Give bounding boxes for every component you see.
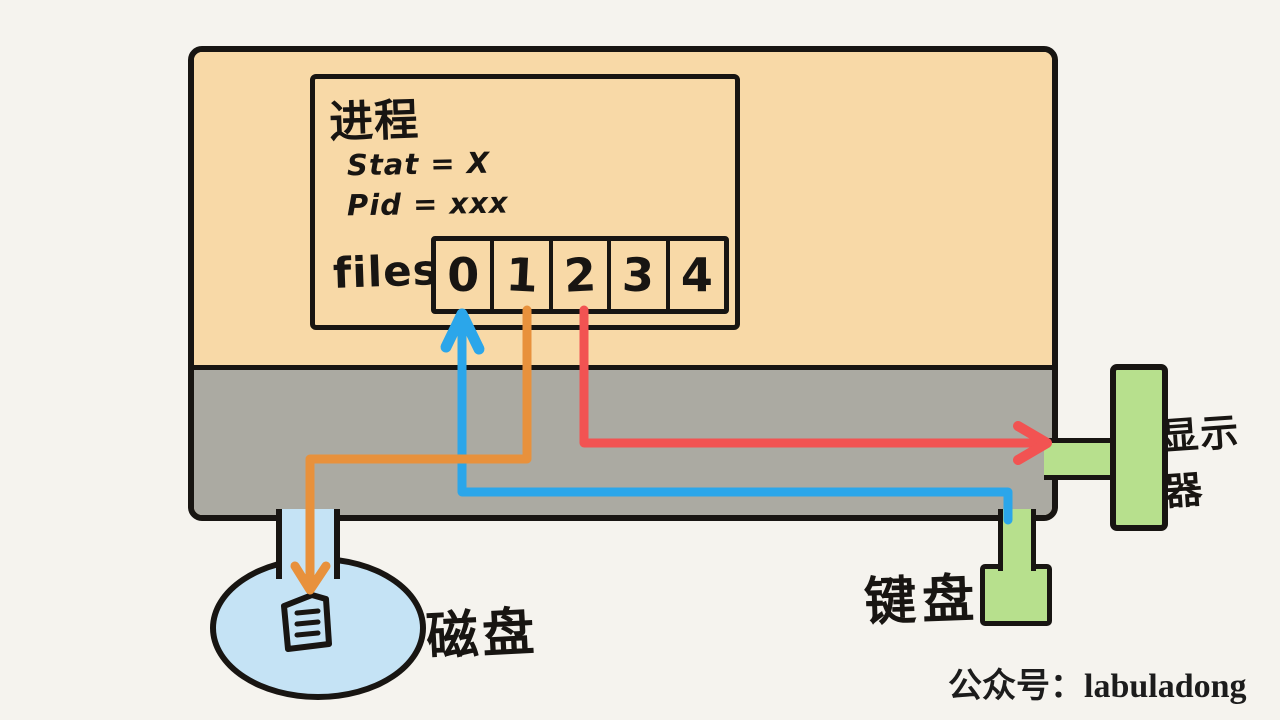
fd-cell-0: 0 bbox=[436, 241, 494, 309]
fd-cell-3: 3 bbox=[611, 241, 669, 309]
display-bar bbox=[1110, 364, 1168, 531]
keyboard-connector bbox=[998, 509, 1036, 571]
kernel-space-region bbox=[194, 370, 1052, 515]
display-connector bbox=[1044, 438, 1116, 480]
process-stat-line: Stat = X bbox=[347, 146, 491, 182]
fd-table: 0 1 2 3 4 bbox=[431, 236, 729, 314]
disk-neck bbox=[276, 509, 340, 579]
keyboard-box bbox=[980, 564, 1052, 626]
file-document-icon bbox=[270, 588, 348, 664]
fd-cell-2: 2 bbox=[553, 241, 611, 309]
files-label: files bbox=[332, 245, 439, 298]
disk-label: 磁盘 bbox=[424, 589, 540, 670]
fd-cell-1: 1 bbox=[494, 241, 552, 309]
display-label: 显示器 bbox=[1158, 398, 1280, 516]
process-title: 进程 bbox=[328, 83, 420, 150]
diagram-canvas: 进程 Stat = X Pid = xxx files 0 1 2 3 4 磁盘… bbox=[0, 0, 1280, 720]
watermark: 公众号：labuladong bbox=[948, 658, 1247, 707]
process-pid-line: Pid = xxx bbox=[347, 186, 509, 223]
fd-cell-4: 4 bbox=[670, 241, 724, 309]
keyboard-label: 键盘 bbox=[863, 556, 982, 635]
process-box: 进程 Stat = X Pid = xxx files 0 1 2 3 4 bbox=[310, 74, 740, 330]
